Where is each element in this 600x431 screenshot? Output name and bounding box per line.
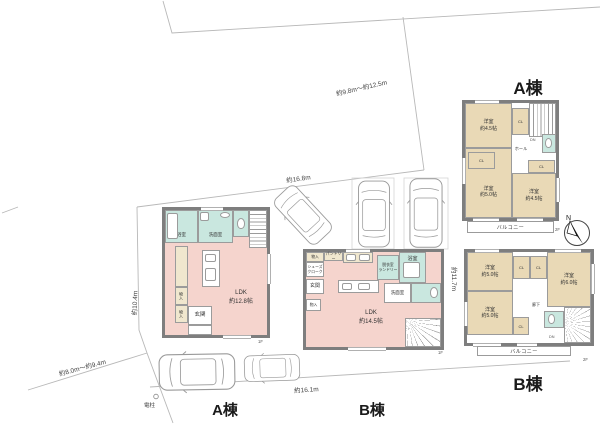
room-western-r-b2f: 洋室約6.0帖: [547, 252, 591, 307]
room-western-tl-a2f: 洋室約4.5帖: [465, 103, 512, 148]
dim-label-left: 約10.4m: [128, 281, 140, 325]
bathtub-icon: [167, 213, 178, 239]
room-western-bl-b2f: 洋室約5.0帖: [467, 291, 513, 335]
room-entrance-a1f: 玄関: [188, 306, 212, 325]
closet-a2f: CL: [468, 152, 495, 169]
dim-label-right: 約11.7m: [450, 257, 460, 301]
stairs-a2f: [529, 103, 556, 137]
window: [475, 100, 499, 104]
car-icon: [270, 181, 336, 248]
stove-icon: [205, 268, 216, 281]
car-icon: [407, 179, 444, 247]
window: [475, 249, 499, 253]
boundary-west-stub: [2, 207, 18, 213]
window: [464, 302, 468, 326]
sink-icon: [220, 212, 230, 218]
ldk-label-a1f: LDK 約12.8帖: [217, 290, 265, 305]
boundary-southwest: [28, 353, 147, 390]
window: [555, 249, 581, 253]
north-compass-icon: N: [565, 215, 590, 246]
balcony-b2f: バルコニー: [477, 346, 571, 356]
laundry-room-b1f: 脱衣室ランドリー: [377, 255, 399, 280]
closet-b2f: CL: [513, 256, 530, 279]
floorplan-b-2f: 洋室約5.0帖 CL CL 洋室約6.0帖 廊下 洋室約5.0帖 CL DN: [464, 249, 594, 346]
building-a-title: A棟: [500, 74, 556, 99]
toilet-icon: [237, 218, 245, 229]
floor-label-a2f: 2F: [555, 227, 560, 232]
floorplan-b-1f: 物入 パントリー シューズクローク 玄関 物入 脱衣室ランドリー 浴室 洗面室 …: [303, 249, 444, 350]
compass-north-label: N: [566, 215, 571, 222]
closet-b2f: CL: [530, 256, 547, 279]
car-icon: [159, 351, 235, 394]
window: [346, 249, 370, 253]
ground-label-building-a: A棟: [203, 399, 247, 420]
site-plan-drawing: N 浴室 洗面室 物入 物入 玄関 LDK 約12.8帖 1F 物入 パントリー…: [0, 0, 600, 431]
floorplan-a-1f: 浴室 洗面室 物入 物入 玄関 LDK 約12.8帖: [162, 207, 270, 338]
island-sink-icon: [342, 283, 352, 290]
stairs-a1f: [249, 210, 267, 248]
floor-label-b1f: 1F: [438, 350, 443, 355]
window: [348, 347, 386, 351]
stairs-b2f: [564, 307, 591, 343]
stairs-b1f: [405, 318, 441, 347]
boundary-northeast: [403, 17, 424, 170]
dim-label-bottom: 約16.1m: [294, 383, 319, 395]
pantry-strip-a1f: [175, 246, 188, 287]
utility-pole-icon: [154, 394, 159, 399]
pantry-b1f: パントリー: [324, 252, 343, 261]
floor-label-a1f: 1F: [258, 339, 263, 344]
storage-b1f: 物入: [306, 299, 321, 311]
room-western-tl-b2f: 洋室約5.0帖: [467, 252, 513, 291]
bathtub-icon: [403, 262, 420, 278]
shoe-closet-b1f: シューズクローク: [306, 262, 324, 277]
storage-a1f: 物入: [175, 305, 188, 323]
storage-a1f: 物入: [175, 287, 188, 305]
toilet-icon: [545, 138, 552, 148]
corridor-label-b2f: 廊下: [527, 302, 545, 308]
storage-b1f: 物入: [306, 252, 324, 262]
closet-b2f: CL: [513, 317, 529, 335]
counter-sink-icon: [346, 254, 356, 261]
down-label-b2f: DN: [549, 335, 554, 339]
hall-label-a2f: ホール: [511, 146, 531, 152]
toilet-icon: [548, 314, 555, 324]
balcony-a2f: バルコニー: [467, 221, 554, 233]
closet-a2f: CL: [512, 108, 529, 135]
ldk-label-b1f: LDK 約14.5帖: [346, 310, 396, 325]
window: [462, 158, 466, 184]
closet-a2f: CL: [528, 160, 555, 173]
utility-pole-label: 電柱: [144, 401, 155, 409]
floor-label-b2f: 2F: [583, 357, 588, 362]
stove-icon: [359, 254, 370, 261]
window: [201, 207, 223, 211]
ground-label-building-b: B棟: [350, 399, 394, 420]
island-sink-icon: [358, 283, 370, 290]
down-label-a2f: DN: [530, 138, 535, 142]
boundary-top: [163, 1, 600, 33]
window: [223, 335, 251, 339]
kitchen-sink-icon: [205, 254, 216, 262]
entrance-porch-a1f: [188, 325, 212, 335]
window: [556, 178, 560, 202]
room-western-br-a2f: 洋室約4.5帖: [512, 173, 556, 218]
room-washroom-b1f: 洗面室: [384, 283, 411, 303]
room-entrance-b1f: 玄関: [306, 279, 324, 294]
car-icon: [244, 352, 300, 384]
window: [267, 254, 271, 284]
building-b-title: B棟: [500, 370, 556, 395]
window: [591, 264, 595, 294]
car-icon: [356, 181, 392, 247]
washer-icon: [200, 212, 209, 221]
floorplan-a-2f: 洋室約4.5帖 CL DN ホール 洋室約5.0帖 CL 洋室約4.5帖 CL: [462, 100, 559, 221]
toilet-icon: [430, 287, 438, 298]
